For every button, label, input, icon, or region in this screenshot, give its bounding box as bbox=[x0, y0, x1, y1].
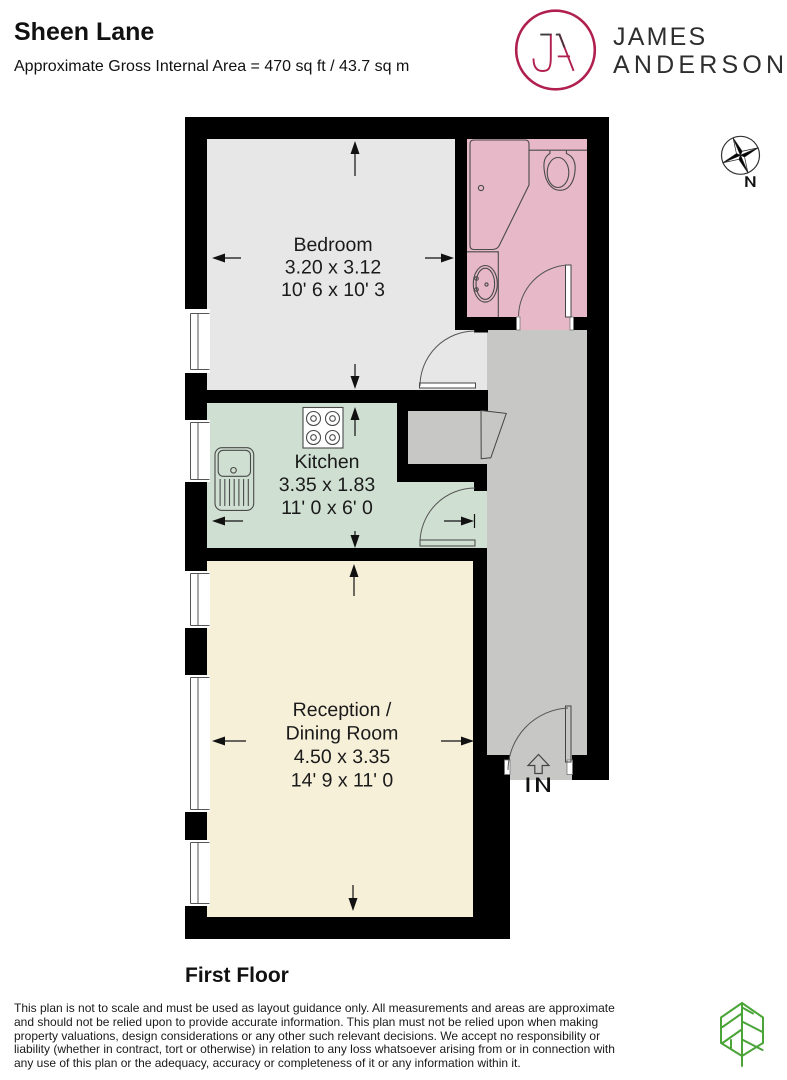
svg-text:Kitchen: Kitchen bbox=[294, 451, 359, 473]
svg-text:11' 0 x 6' 0: 11' 0 x 6' 0 bbox=[281, 497, 373, 519]
svg-text:4.50 x 3.35: 4.50 x 3.35 bbox=[294, 746, 391, 768]
svg-text:3.20 x 3.12: 3.20 x 3.12 bbox=[285, 257, 382, 279]
svg-text:10' 6 x 10' 3: 10' 6 x 10' 3 bbox=[281, 279, 385, 301]
svg-text:Reception /: Reception / bbox=[293, 699, 392, 721]
svg-text:3.35 x 1.83: 3.35 x 1.83 bbox=[279, 474, 376, 496]
svg-text:Bedroom: Bedroom bbox=[293, 234, 372, 256]
svg-text:14' 9 x 11' 0: 14' 9 x 11' 0 bbox=[291, 770, 394, 792]
svg-text:Dining Room: Dining Room bbox=[286, 723, 399, 745]
